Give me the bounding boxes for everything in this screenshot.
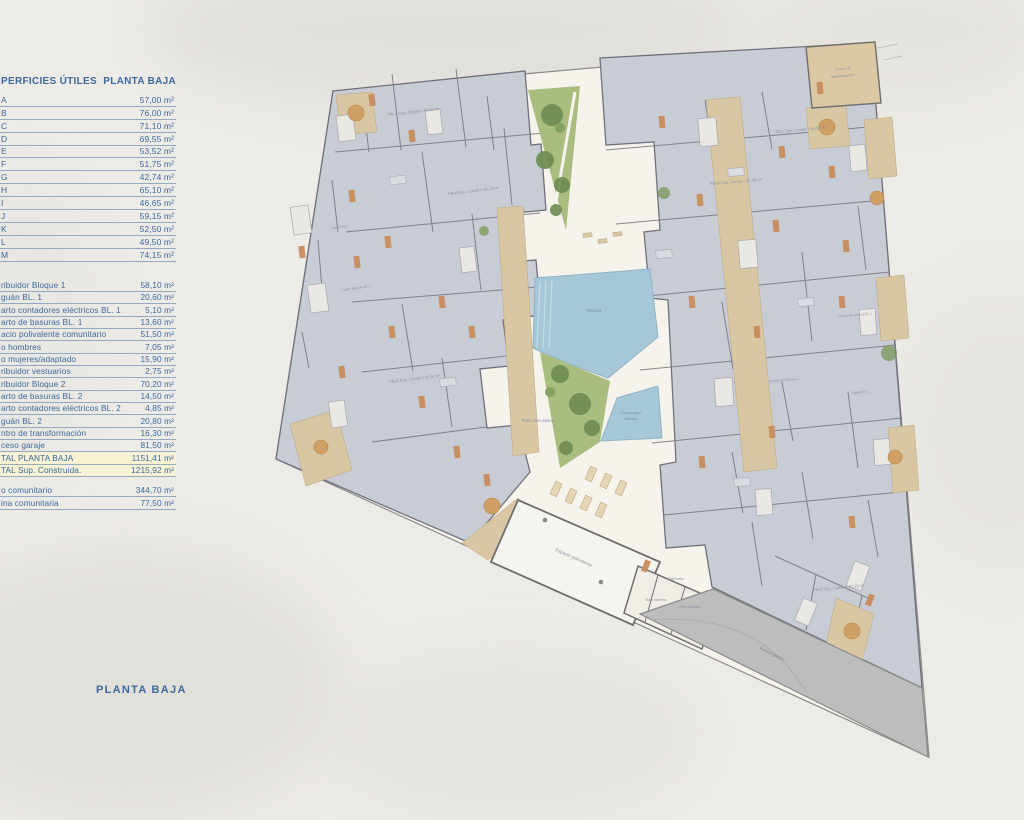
raised-pool-label-2: elevada <box>625 417 637 421</box>
row-label: F <box>1 159 6 169</box>
row-label: o hombres <box>1 342 41 352</box>
table-row: o comunitario344,70 m² <box>0 485 176 497</box>
community-rows: o comunitario344,70 m²ina comunitaria77,… <box>0 485 176 510</box>
row-label: guán BL. 2 <box>1 416 42 426</box>
row-value: 42,74 m² <box>140 172 174 182</box>
row-value: 344,70 m² <box>136 485 174 495</box>
row-value: 7,05 m² <box>145 342 174 352</box>
row-label: ribuidor Bloque 1 <box>1 280 65 290</box>
row-value: 20,80 m² <box>140 416 174 426</box>
table-row: K52,50 m² <box>0 223 176 236</box>
row-label: I <box>1 198 3 208</box>
row-value: 70,20 m² <box>140 379 174 389</box>
row-label: H <box>1 185 7 195</box>
table-row: TAL Sup. Construida.1215,92 m² <box>0 465 176 477</box>
table-row: B76,00 m² <box>0 107 176 120</box>
row-value: 1215,92 m² <box>131 465 174 475</box>
table-row: M74,15 m² <box>0 249 176 262</box>
row-value: 57,00 m² <box>140 95 174 105</box>
row-value: 4,85 m² <box>145 403 174 413</box>
units-rows: A57,00 m²B76,00 m²C71,10 m²D69,55 m²E53,… <box>0 94 176 262</box>
table-row: ntro de transformación16,30 m² <box>0 428 176 440</box>
row-value: 76,00 m² <box>140 108 174 118</box>
row-label: J <box>1 211 5 221</box>
row-value: 46,65 m² <box>140 198 174 208</box>
table-header-col1: PERFICIES ÚTILES <box>1 76 97 87</box>
row-label: arto de basuras BL. 2 <box>1 391 82 401</box>
row-label: ribuidor vestuarios <box>1 366 71 376</box>
row-label: D <box>1 134 7 144</box>
row-value: 71,10 m² <box>140 121 174 131</box>
row-label: TAL Sup. Construida. <box>1 465 81 475</box>
boundary-ticks <box>878 44 902 60</box>
row-label: A <box>1 95 7 105</box>
row-label: L <box>1 237 6 247</box>
table-header: PERFICIES ÚTILES PLANTA BAJA <box>0 76 176 87</box>
row-label: M <box>1 250 8 260</box>
row-label: B <box>1 108 7 118</box>
row-value: 58,10 m² <box>140 280 174 290</box>
table-row: J59,15 m² <box>0 210 176 223</box>
row-label: G <box>1 172 8 182</box>
row-value: 15,90 m² <box>140 354 174 364</box>
row-value: 16,30 m² <box>140 428 174 438</box>
row-value: 51,75 m² <box>140 159 174 169</box>
row-label: ina comunitaria <box>1 498 59 508</box>
common-area-rows: ribuidor Bloque 158,10 m²guán BL. 120,60… <box>0 280 176 478</box>
table-row: TAL PLANTA BAJA1151,41 m² <box>0 452 176 464</box>
row-label: arto de basuras BL. 1 <box>1 317 82 327</box>
row-label: ribuidor Bloque 2 <box>1 379 65 389</box>
table-row: guán BL. 220,80 m² <box>0 415 176 427</box>
row-value: 2,75 m² <box>145 366 174 376</box>
row-value: 52,50 m² <box>140 224 174 234</box>
raised-pool-label-1: Piscina sobre <box>621 411 641 415</box>
row-label: guán BL. 1 <box>1 292 42 302</box>
row-label: C <box>1 121 7 131</box>
table-row: D69,55 m² <box>0 133 176 146</box>
table-row: o hombres7,05 m² <box>0 341 176 353</box>
row-value: 74,15 m² <box>140 250 174 260</box>
table-row: F51,75 m² <box>0 158 176 171</box>
row-label: acio polivalente comunitario <box>1 329 106 339</box>
row-value: 53,52 m² <box>140 146 174 156</box>
table-row: ribuidor vestuarios2,75 m² <box>0 366 176 378</box>
row-value: 65,10 m² <box>140 185 174 195</box>
row-value: 59,15 m² <box>140 211 174 221</box>
table-row: E53,52 m² <box>0 146 176 159</box>
row-label: K <box>1 224 7 234</box>
row-label: ceso garaje <box>1 440 45 450</box>
table-row: arto contadores eléctricos BL. 24,85 m² <box>0 403 176 415</box>
table-row: o mujeres/adaptado15,90 m² <box>0 354 176 366</box>
table-row: I46,65 m² <box>0 197 176 210</box>
table-row: ribuidor Bloque 270,20 m² <box>0 378 176 390</box>
patio-label: Patio comunitario <box>522 418 555 423</box>
row-value: 5,10 m² <box>145 305 174 315</box>
table-row: arto de basuras BL. 113,60 m² <box>0 317 176 329</box>
pool-label: Piscina <box>587 308 602 313</box>
row-value: 51,50 m² <box>140 329 174 339</box>
row-value: 1151,41 m² <box>132 453 174 463</box>
row-label: arto contadores eléctricos BL. 2 <box>1 403 121 413</box>
row-value: 69,55 m² <box>140 134 174 144</box>
mens-bath-label: Baño hombres <box>646 598 667 602</box>
table-row: H65,10 m² <box>0 184 176 197</box>
row-value: 49,50 m² <box>140 237 174 247</box>
table-row: acio polivalente comunitario51,50 m² <box>0 329 176 341</box>
table-row: arto contadores eléctricos BL. 15,10 m² <box>0 304 176 316</box>
surfaces-table: PERFICIES ÚTILES PLANTA BAJA A57,00 m²B7… <box>0 76 176 510</box>
table-row: A57,00 m² <box>0 94 176 107</box>
row-value: 20,60 m² <box>140 292 174 302</box>
row-value: 13,60 m² <box>140 317 174 327</box>
row-label: ntro de transformación <box>1 428 86 438</box>
row-value: 81,50 m² <box>140 440 174 450</box>
table-row: ceso garaje81,50 m² <box>0 440 176 452</box>
table-row: G42,74 m² <box>0 171 176 184</box>
table-row: guán BL. 120,60 m² <box>0 292 176 304</box>
row-label: TAL PLANTA BAJA <box>1 453 73 463</box>
adapted-bath-label: Baño adaptado <box>679 605 701 609</box>
distributor-label: Distribuidor <box>668 577 685 581</box>
row-label: o comunitario <box>1 485 52 495</box>
table-row: ina comunitaria77,50 m² <box>0 497 176 509</box>
table-row: arto de basuras BL. 214,50 m² <box>0 391 176 403</box>
row-label: o mujeres/adaptado <box>1 354 76 364</box>
table-header-col2: PLANTA BAJA <box>103 76 176 87</box>
floor-plan-title: PLANTA BAJA <box>96 684 187 696</box>
row-label: arto contadores eléctricos BL. 1 <box>1 305 121 315</box>
table-row: C71,10 m² <box>0 120 176 133</box>
table-row: L49,50 m² <box>0 236 176 249</box>
row-value: 77,50 m² <box>140 498 174 508</box>
row-label: E <box>1 146 7 156</box>
table-row: ribuidor Bloque 158,10 m² <box>0 280 176 292</box>
row-value: 14,50 m² <box>140 391 174 401</box>
